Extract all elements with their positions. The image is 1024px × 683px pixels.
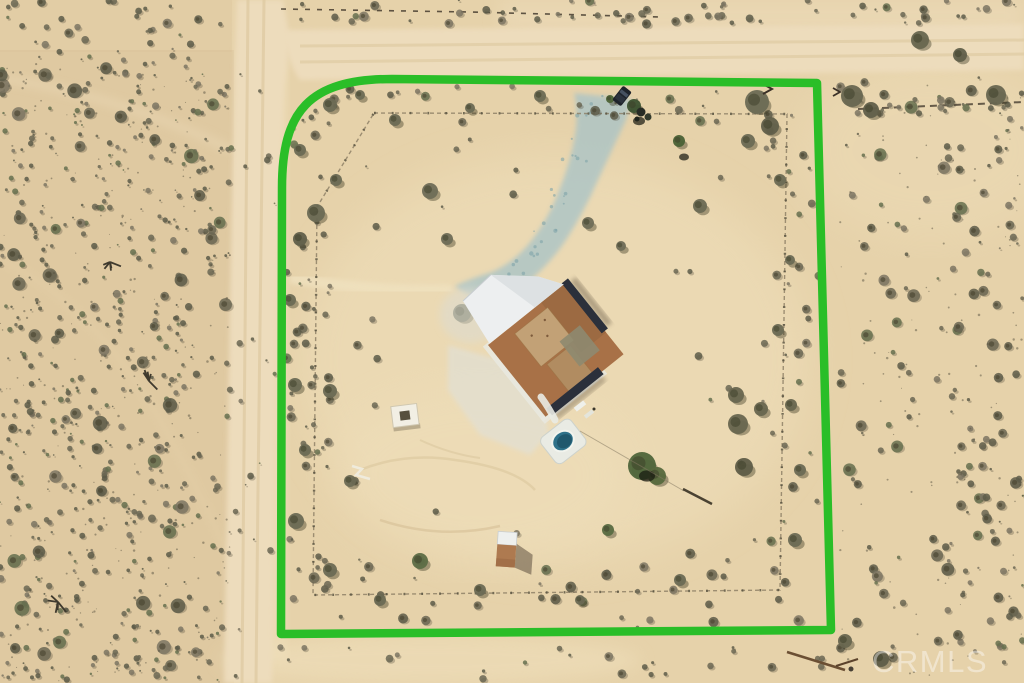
equipment-blob <box>637 108 646 117</box>
scrub-corner-tint <box>0 0 232 52</box>
yucca-shadow <box>639 470 655 481</box>
aerial-photo-canvas <box>0 0 1024 683</box>
pole-base <box>849 667 854 672</box>
shed-roof <box>497 531 517 545</box>
shed-body-shade <box>496 558 516 567</box>
equipment-blob <box>645 114 652 121</box>
aerial-photo: CRMLS <box>0 0 1024 683</box>
yucca-shadow <box>679 154 689 161</box>
crmls-watermark: CRMLS <box>872 644 1022 680</box>
well-pad <box>391 403 421 431</box>
equipment-blob <box>635 117 640 122</box>
patio-dot <box>593 408 596 411</box>
well-pad-hatch <box>399 410 410 420</box>
